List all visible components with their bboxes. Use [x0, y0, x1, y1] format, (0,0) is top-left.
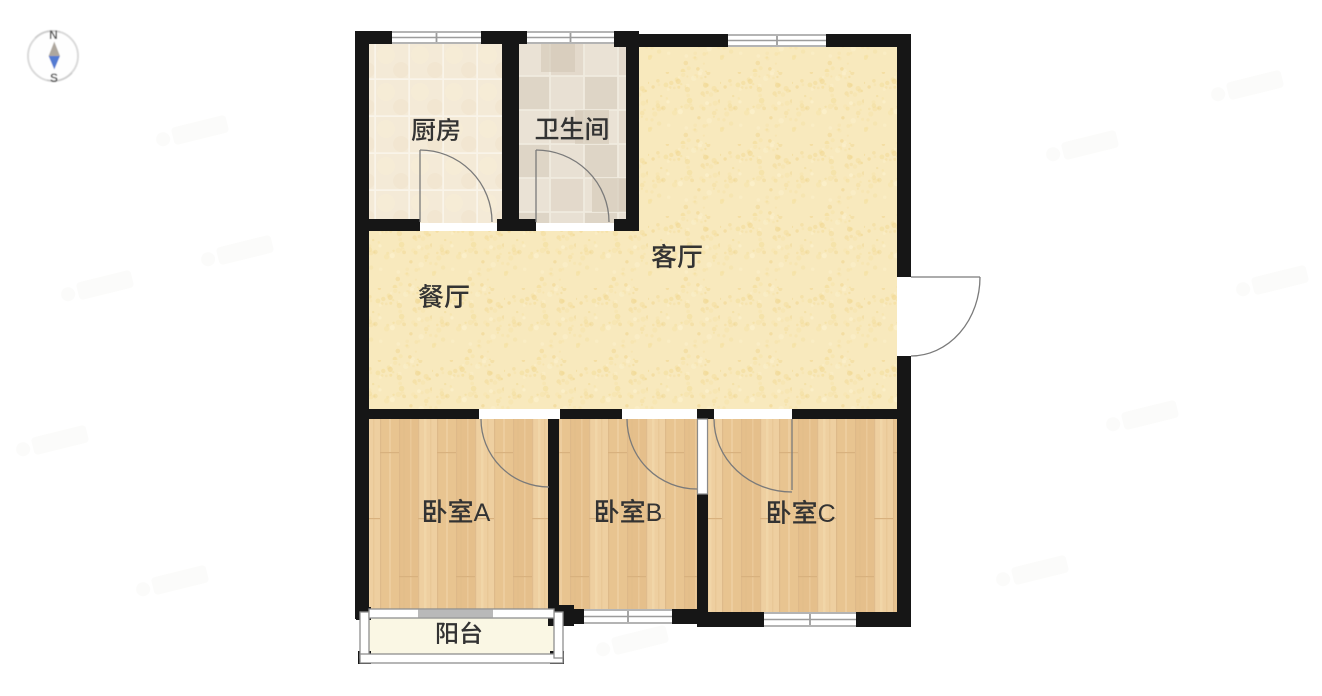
- svg-text:A: A: [474, 499, 491, 527]
- svg-text:C: C: [818, 500, 836, 528]
- svg-text:B: B: [646, 499, 663, 527]
- svg-text:N: N: [49, 28, 58, 42]
- svg-text:S: S: [50, 71, 58, 85]
